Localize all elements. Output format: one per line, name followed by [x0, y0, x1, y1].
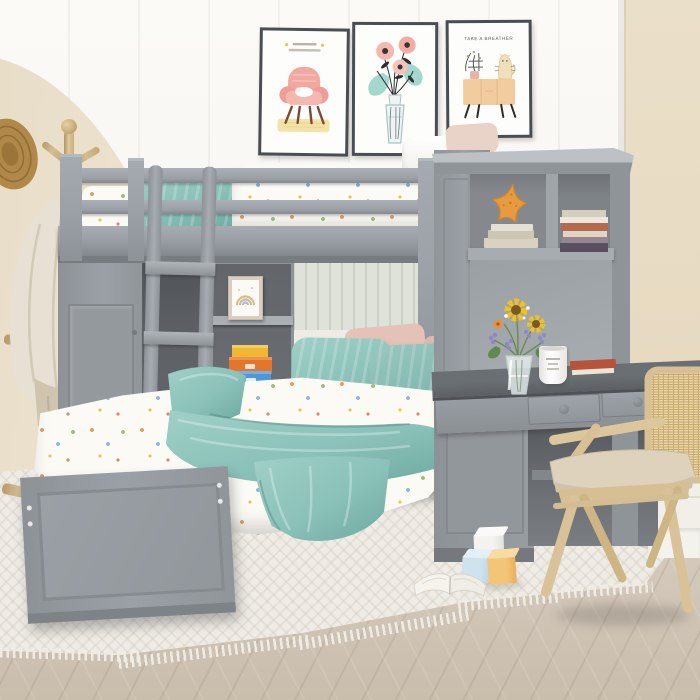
- book-stack-right: [560, 243, 608, 252]
- footboard-panel: [37, 483, 225, 601]
- cat-on-cabinet-art: TAKE A BREATHER: [449, 23, 530, 136]
- bunk-post-mid: [128, 158, 144, 261]
- bedroom-product-photo: TAKE A BREATHER: [0, 0, 700, 700]
- chair-armrest: [554, 422, 660, 440]
- footboard: [20, 466, 236, 623]
- rainbow-picture-frame: [228, 276, 263, 320]
- toy-block-top: [474, 526, 509, 536]
- rattan-chair: [536, 366, 700, 632]
- chair-leg: [546, 500, 574, 592]
- bolt-cap: [217, 483, 222, 488]
- book-stack-right: [561, 223, 608, 231]
- coat-rack-finial: [61, 119, 77, 134]
- book-stack-right: [560, 217, 608, 223]
- ladder-rung: [143, 331, 213, 346]
- guardrail-mid: [64, 200, 444, 214]
- armchair-print: [258, 27, 350, 156]
- bolt-cap: [28, 521, 33, 526]
- hutch-divider: [546, 170, 558, 250]
- flower-bouquet-art: [355, 25, 435, 153]
- open-book: [409, 567, 490, 604]
- armchair-print-art: [261, 30, 347, 153]
- ladder-rung: [145, 261, 215, 276]
- guardrail-top: [64, 168, 444, 183]
- book-stack-right: [562, 210, 606, 217]
- book-stack-left: [484, 238, 538, 248]
- deck-trim: [58, 256, 446, 263]
- cat-on-cabinet-print: TAKE A BREATHER: [446, 20, 533, 139]
- toy-block-orange: [487, 555, 517, 585]
- rainbow-art: [230, 278, 261, 318]
- poster-caption: TAKE A BREATHER: [464, 36, 513, 41]
- book-stack-left: [488, 230, 534, 239]
- decorative-starfish: [487, 182, 533, 228]
- bolt-cap: [218, 499, 223, 504]
- wardrobe-knob: [132, 330, 137, 335]
- mug-rim: [541, 346, 565, 351]
- book-stack-right: [562, 237, 608, 243]
- toy-block-top: [487, 548, 520, 559]
- chair-leg: [584, 498, 622, 578]
- bed-deck-rail: [58, 226, 446, 256]
- book-stack-right: [563, 231, 607, 237]
- mug-print: [548, 363, 558, 365]
- bunk-post-left: [60, 154, 82, 261]
- mug-print: [546, 358, 560, 360]
- bolt-cap: [27, 505, 32, 510]
